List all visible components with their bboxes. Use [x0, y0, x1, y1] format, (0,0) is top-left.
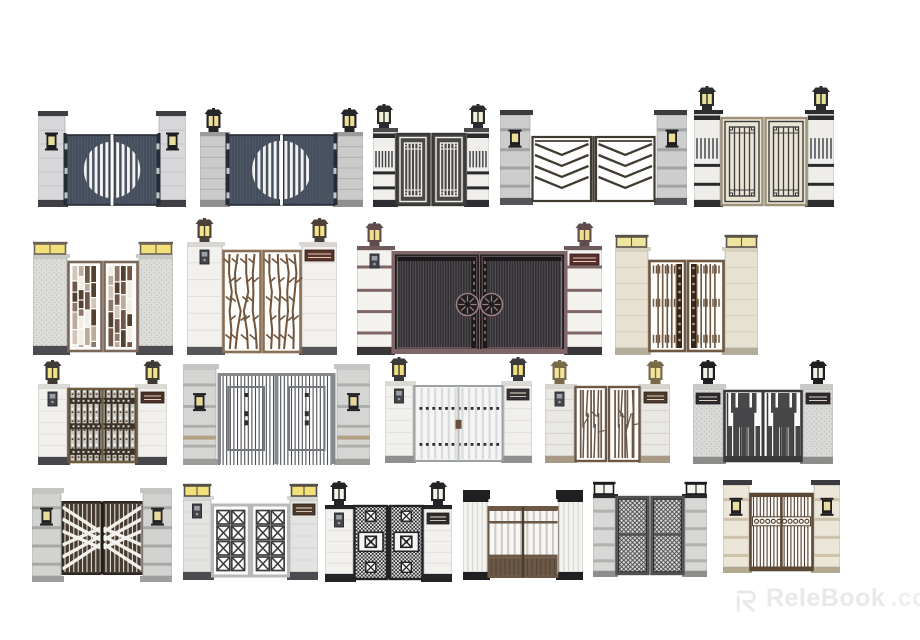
gate-dense-wrought-iron-doors: gate-dense-wrought-iron-doors: [38, 360, 167, 465]
watermark-suffix: .com: [890, 584, 920, 613]
gate-diagonal-mesh-doors: gate-diagonal-mesh-doors: [593, 481, 707, 577]
gate-white-slat-doors-column-pillars: gate-white-slat-doors-column-pillars: [463, 490, 583, 580]
gate-catalog-canvas: gate-dark-circle-slat-doors-wall-lampsga…: [0, 0, 920, 640]
gate-x-lattice-doors: gate-x-lattice-doors: [183, 483, 318, 580]
gate-dark-lattice-cream-doors: gate-dark-lattice-cream-doors: [694, 86, 834, 207]
gate-white-lattice-doors: gate-white-lattice-doors: [373, 104, 489, 207]
gate-grand-slat-doors-medallions: gate-grand-slat-doors-medallions: [357, 222, 602, 355]
gate-irregular-stick-doors: gate-irregular-stick-doors: [545, 360, 670, 463]
gate-gray-bar-fence-doors: gate-gray-bar-fence-doors: [183, 364, 370, 465]
gate-skyline-silhouette-doors: gate-skyline-silhouette-doors: [693, 360, 833, 464]
gate-chevron-bar-doors: gate-chevron-bar-doors: [500, 110, 687, 205]
watermark: ReleBook.com: [733, 584, 920, 613]
gate-white-slat-doors-square-studs: gate-white-slat-doors-square-studs: [385, 357, 532, 463]
watermark-brand: ReleBook: [766, 584, 885, 613]
gate-black-fretwork-doors: gate-black-fretwork-doors: [325, 481, 452, 582]
gate-brown-mosaic-doors: gate-brown-mosaic-doors: [33, 241, 173, 355]
gate-branch-lattice-doors: gate-branch-lattice-doors: [187, 218, 337, 355]
gate-bar-doors-scroll-band: gate-bar-doors-scroll-band: [723, 480, 840, 573]
gate-bar-doors-ornament-strips: gate-bar-doors-ornament-strips: [615, 234, 758, 355]
gate-dark-circle-slat-doors-wall-lamps: gate-dark-circle-slat-doors-wall-lamps: [38, 111, 186, 207]
gate-diagonal-stripe-doors: gate-diagonal-stripe-doors: [32, 488, 172, 582]
relebook-logo-icon: [733, 585, 761, 613]
gate-dark-circle-slat-doors-lantern-pillars: gate-dark-circle-slat-doors-lantern-pill…: [200, 108, 363, 207]
